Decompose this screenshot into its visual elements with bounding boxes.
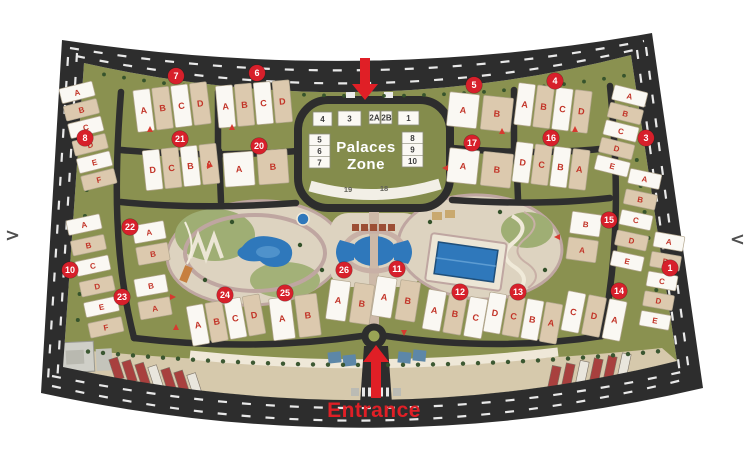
cluster-marker[interactable]: 14 [611, 283, 628, 300]
cluster-marker-number: 14 [614, 286, 624, 296]
tree-icon [236, 360, 240, 364]
cluster-marker[interactable]: 4 [547, 73, 564, 90]
tree-icon [581, 355, 585, 359]
cluster-marker[interactable]: 23 [114, 289, 131, 306]
cluster-marker[interactable]: 7 [168, 68, 185, 85]
tree-icon [326, 362, 330, 366]
cluster-marker[interactable]: 17 [464, 135, 481, 152]
tree-icon [566, 356, 570, 360]
tree-icon [502, 88, 506, 92]
gate-post [346, 92, 355, 98]
cluster-marker[interactable]: 8 [77, 130, 94, 147]
tree-icon [641, 351, 645, 355]
cluster-marker[interactable]: 26 [336, 262, 353, 279]
cluster-marker[interactable]: 10 [62, 262, 79, 279]
building-letter: B [269, 162, 277, 172]
cluster-marker[interactable]: 3 [638, 130, 655, 147]
palace-block-number: 3 [347, 115, 352, 124]
tree-icon [482, 90, 486, 94]
cluster-marker-number: 21 [175, 134, 185, 144]
building-letter: A [235, 164, 243, 174]
tree-icon [161, 356, 165, 360]
cluster-marker-number: 23 [117, 292, 127, 302]
cluster-marker[interactable]: 25 [277, 285, 294, 302]
tree-icon [162, 81, 166, 85]
palace-block-number: 4 [320, 115, 325, 124]
cluster-marker[interactable]: 16 [543, 130, 560, 147]
tree-icon [476, 361, 480, 365]
tree-icon [602, 77, 606, 81]
cluster-marker[interactable]: 20 [251, 138, 268, 155]
tree-icon [654, 288, 658, 292]
cluster-marker-number: 5 [471, 80, 476, 90]
cluster-marker-number: 12 [455, 287, 465, 297]
tree-icon [102, 73, 106, 77]
tree-icon [506, 360, 510, 364]
cluster-marker-number: 4 [552, 76, 557, 86]
cluster-marker[interactable]: 24 [217, 287, 234, 304]
tree-icon [521, 359, 525, 363]
entrance-label: Entrance [327, 399, 421, 422]
cluster-marker-number: 22 [125, 222, 135, 232]
tree-icon [622, 74, 626, 78]
tree-icon [491, 360, 495, 364]
tree-icon [142, 79, 146, 83]
cluster-marker[interactable]: 11 [389, 261, 406, 278]
tree-icon [431, 362, 435, 366]
tree-icon [401, 363, 405, 367]
palaces-zone: 432A2B15678910 Palaces Zone 1918 [298, 92, 450, 208]
tree-icon [356, 363, 360, 367]
palaces-zone-title-line1: Palaces [336, 139, 395, 156]
tree-icon [251, 360, 255, 364]
cluster-marker-number: 7 [173, 71, 178, 81]
tree-icon [342, 94, 346, 98]
cluster-marker-number: 8 [82, 133, 87, 143]
tree-icon [382, 94, 386, 98]
cluster-marker-number: 3 [643, 133, 648, 143]
cluster-marker-number: 26 [339, 265, 349, 275]
cluster-marker-number: 11 [392, 264, 402, 274]
cluster-marker-number: 24 [220, 290, 230, 300]
palace-block-number: 2B [381, 114, 391, 123]
tree-icon [116, 352, 120, 356]
tree-icon [626, 352, 630, 356]
tree-icon [191, 357, 195, 361]
palace-block-number: 6 [317, 147, 322, 156]
tree-icon [656, 349, 660, 353]
tree-icon [296, 362, 300, 366]
tree-icon [402, 94, 406, 98]
cluster-marker-number: 6 [254, 68, 259, 78]
tree-icon [221, 359, 225, 363]
tree-icon [386, 363, 390, 367]
tree-icon [551, 357, 555, 361]
palace-block-number: 2A [369, 114, 379, 123]
palace-arc-number: 19 [344, 185, 352, 194]
palace-block-number: 5 [317, 136, 322, 145]
tree-icon [446, 362, 450, 366]
tree-icon [302, 93, 306, 97]
cluster-marker-number: 15 [604, 215, 614, 225]
tree-icon [536, 358, 540, 362]
tree-icon [281, 361, 285, 365]
tree-icon [131, 353, 135, 357]
tree-icon [582, 80, 586, 84]
tree-icon [635, 158, 639, 162]
cluster-marker[interactable]: 21 [172, 131, 189, 148]
swimming-pool [425, 233, 507, 291]
tree-icon [86, 349, 90, 353]
palace-block-number: 8 [410, 134, 415, 143]
cluster-marker[interactable]: 15 [601, 212, 618, 229]
masterplan-map: 432A2B15678910 Palaces Zone 1918 ABCDABC… [0, 0, 750, 470]
tree-icon [101, 351, 105, 355]
palaces-zone-title-line2: Zone [347, 156, 385, 173]
tree-icon [122, 76, 126, 80]
cluster-marker[interactable]: 1 [662, 260, 679, 277]
tree-icon [596, 354, 600, 358]
tree-icon [611, 353, 615, 357]
cluster-marker[interactable]: 6 [249, 65, 266, 82]
tree-icon [341, 363, 345, 367]
tree-icon [416, 362, 420, 366]
tree-icon [176, 357, 180, 361]
tree-icon [146, 354, 150, 358]
cluster-marker[interactable]: 22 [122, 219, 139, 236]
palace-block-number: 9 [410, 146, 415, 155]
tree-icon [422, 93, 426, 97]
palace-block-number: 10 [408, 157, 417, 166]
cluster-marker-number: 25 [280, 288, 290, 298]
tree-icon [461, 361, 465, 365]
cluster-marker-number: 13 [513, 287, 523, 297]
tree-icon [206, 358, 210, 362]
palace-arc-number: 18 [380, 184, 388, 193]
cluster-marker-number: 1 [667, 263, 672, 273]
cluster-marker-number: 10 [65, 265, 75, 275]
tree-icon [266, 361, 270, 365]
cluster-marker[interactable]: 5 [466, 77, 483, 94]
cluster-marker[interactable]: 12 [452, 284, 469, 301]
masterplan-viewer: > < [0, 0, 750, 470]
tree-icon [76, 318, 80, 322]
palace-block-number: 1 [406, 114, 411, 123]
cluster-marker-number: 16 [546, 133, 556, 143]
tree-icon [311, 362, 315, 366]
tree-icon [643, 210, 647, 214]
tree-icon [442, 92, 446, 96]
cluster-marker-number: 17 [467, 138, 477, 148]
palace-block-number: 7 [317, 158, 322, 167]
cluster-marker[interactable]: 13 [510, 284, 527, 301]
cluster-marker-number: 20 [254, 141, 264, 151]
tree-icon [322, 94, 326, 98]
